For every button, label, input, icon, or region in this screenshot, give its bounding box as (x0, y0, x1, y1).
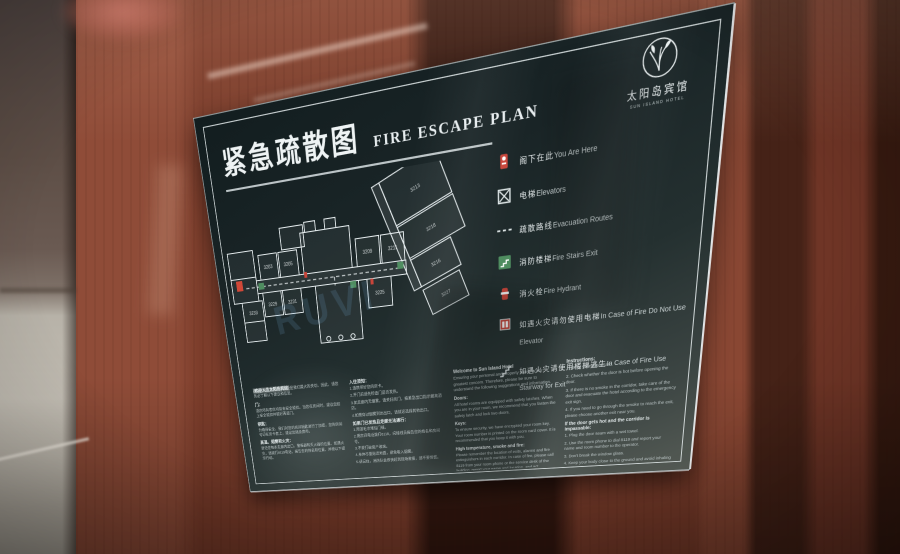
reflection-light-patch (220, 353, 405, 507)
photo-fire-escape-sign-on-wood-wall: 太阳岛宾馆 SUN ISLAND HOTEL 紧急疏散图 FIRE ESCAPE… (0, 0, 900, 554)
window-reflection-shadow (548, 56, 641, 316)
wall-ledge-line (0, 288, 76, 293)
wall-corner-shadow (62, 0, 76, 554)
